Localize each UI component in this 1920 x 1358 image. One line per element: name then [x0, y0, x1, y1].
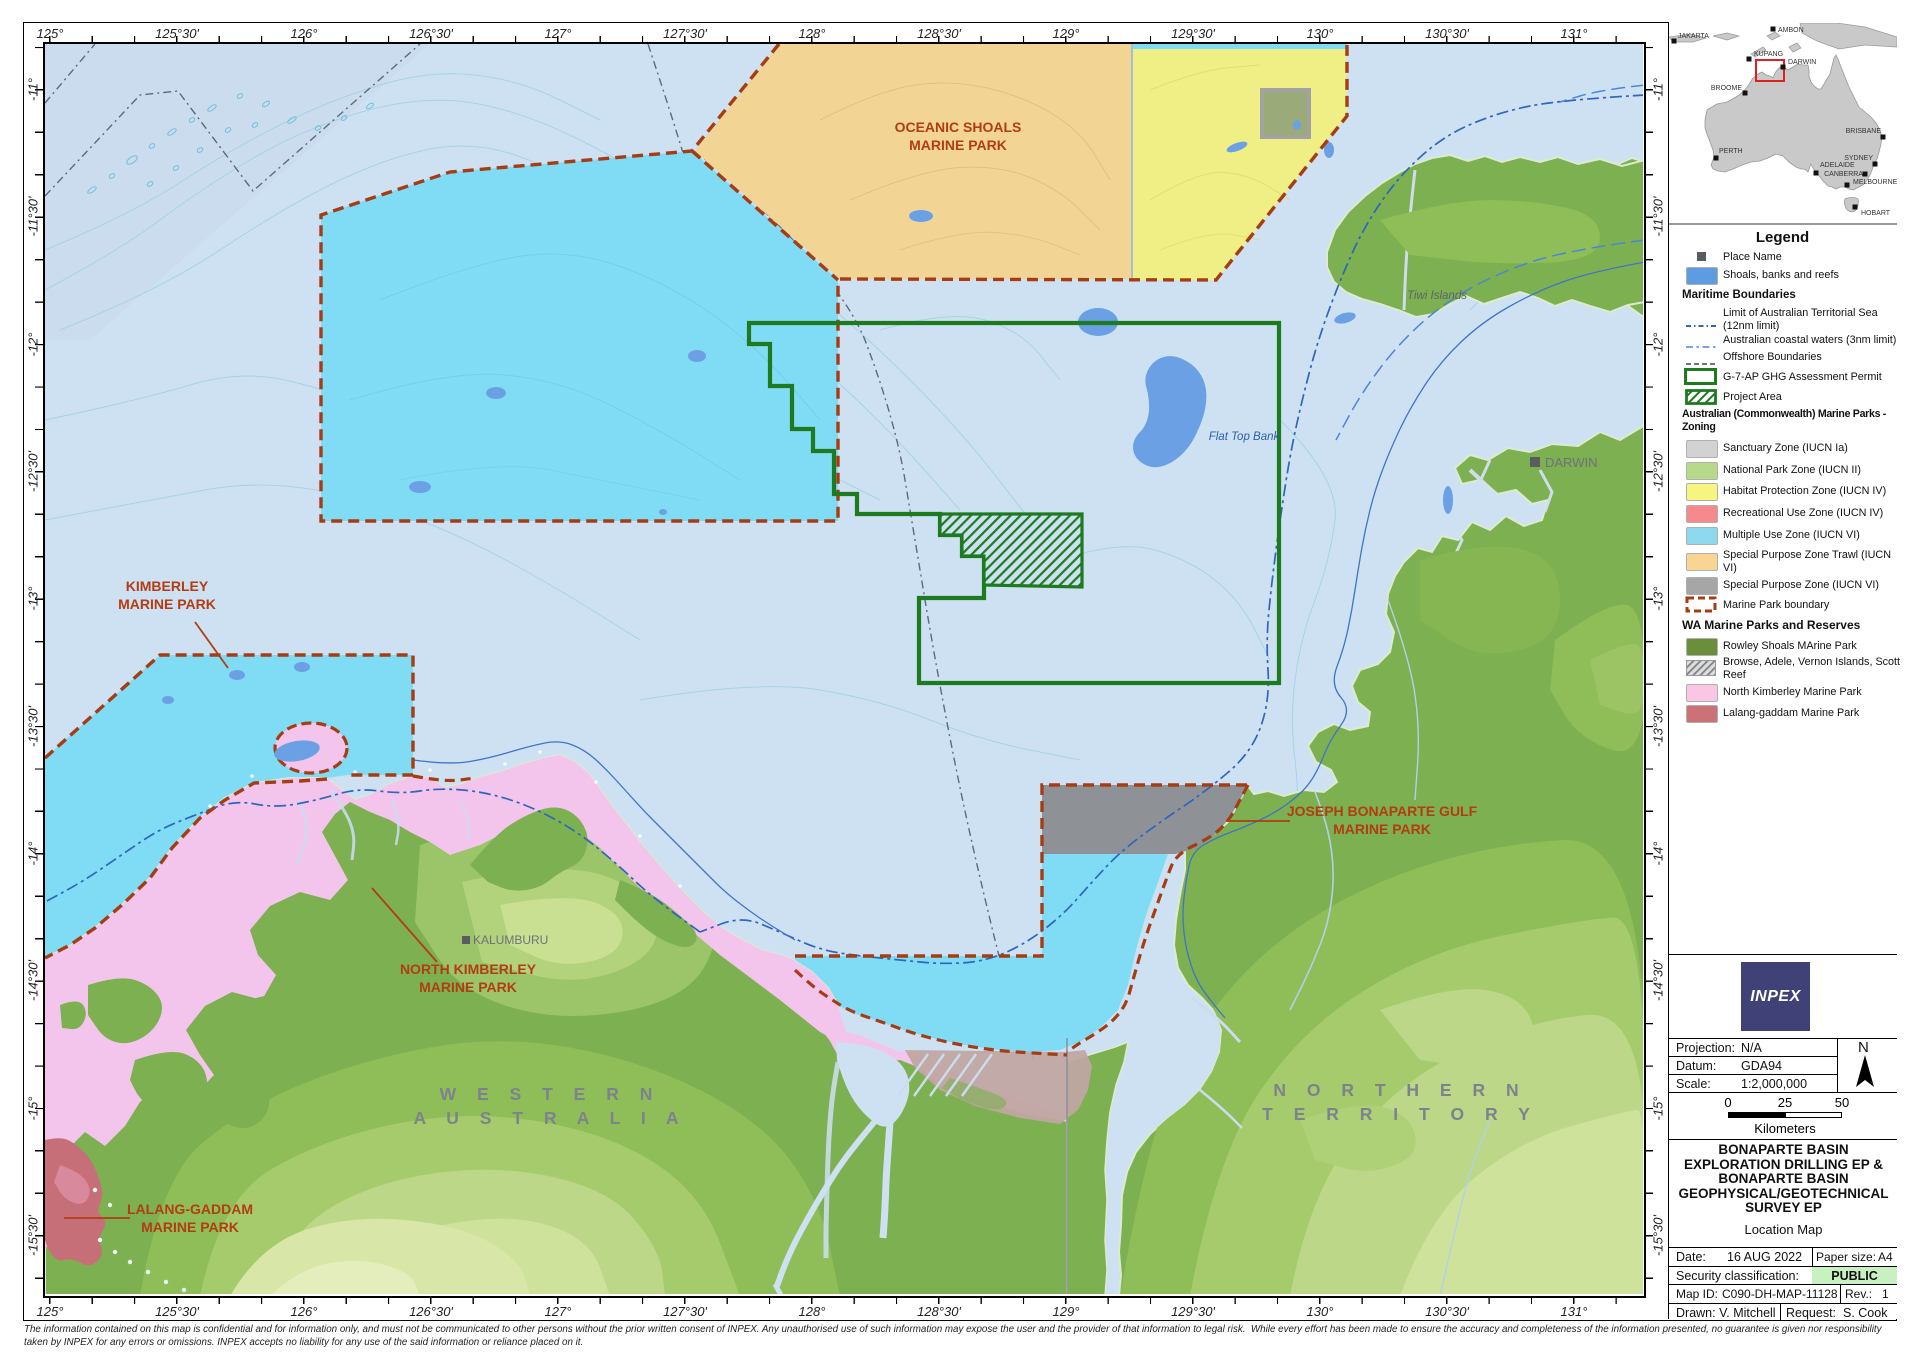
svg-text:DARWIN: DARWIN [1788, 59, 1816, 66]
svg-text:MELBOURNE: MELBOURNE [1853, 179, 1897, 186]
svg-text:HOBART: HOBART [1861, 210, 1891, 217]
svg-text:JAKARTA: JAKARTA [1678, 33, 1709, 40]
svg-text:KUPANG: KUPANG [1754, 51, 1783, 58]
svg-text:BRISBANE: BRISBANE [1846, 128, 1882, 135]
svg-text:CANBERRA: CANBERRA [1824, 171, 1863, 178]
svg-text:PERTH: PERTH [1719, 148, 1743, 155]
svg-text:ADELAIDE: ADELAIDE [1820, 162, 1855, 169]
svg-text:SYDNEY: SYDNEY [1844, 155, 1873, 162]
svg-text:BROOME: BROOME [1711, 85, 1742, 92]
svg-text:AMBON: AMBON [1778, 27, 1804, 34]
